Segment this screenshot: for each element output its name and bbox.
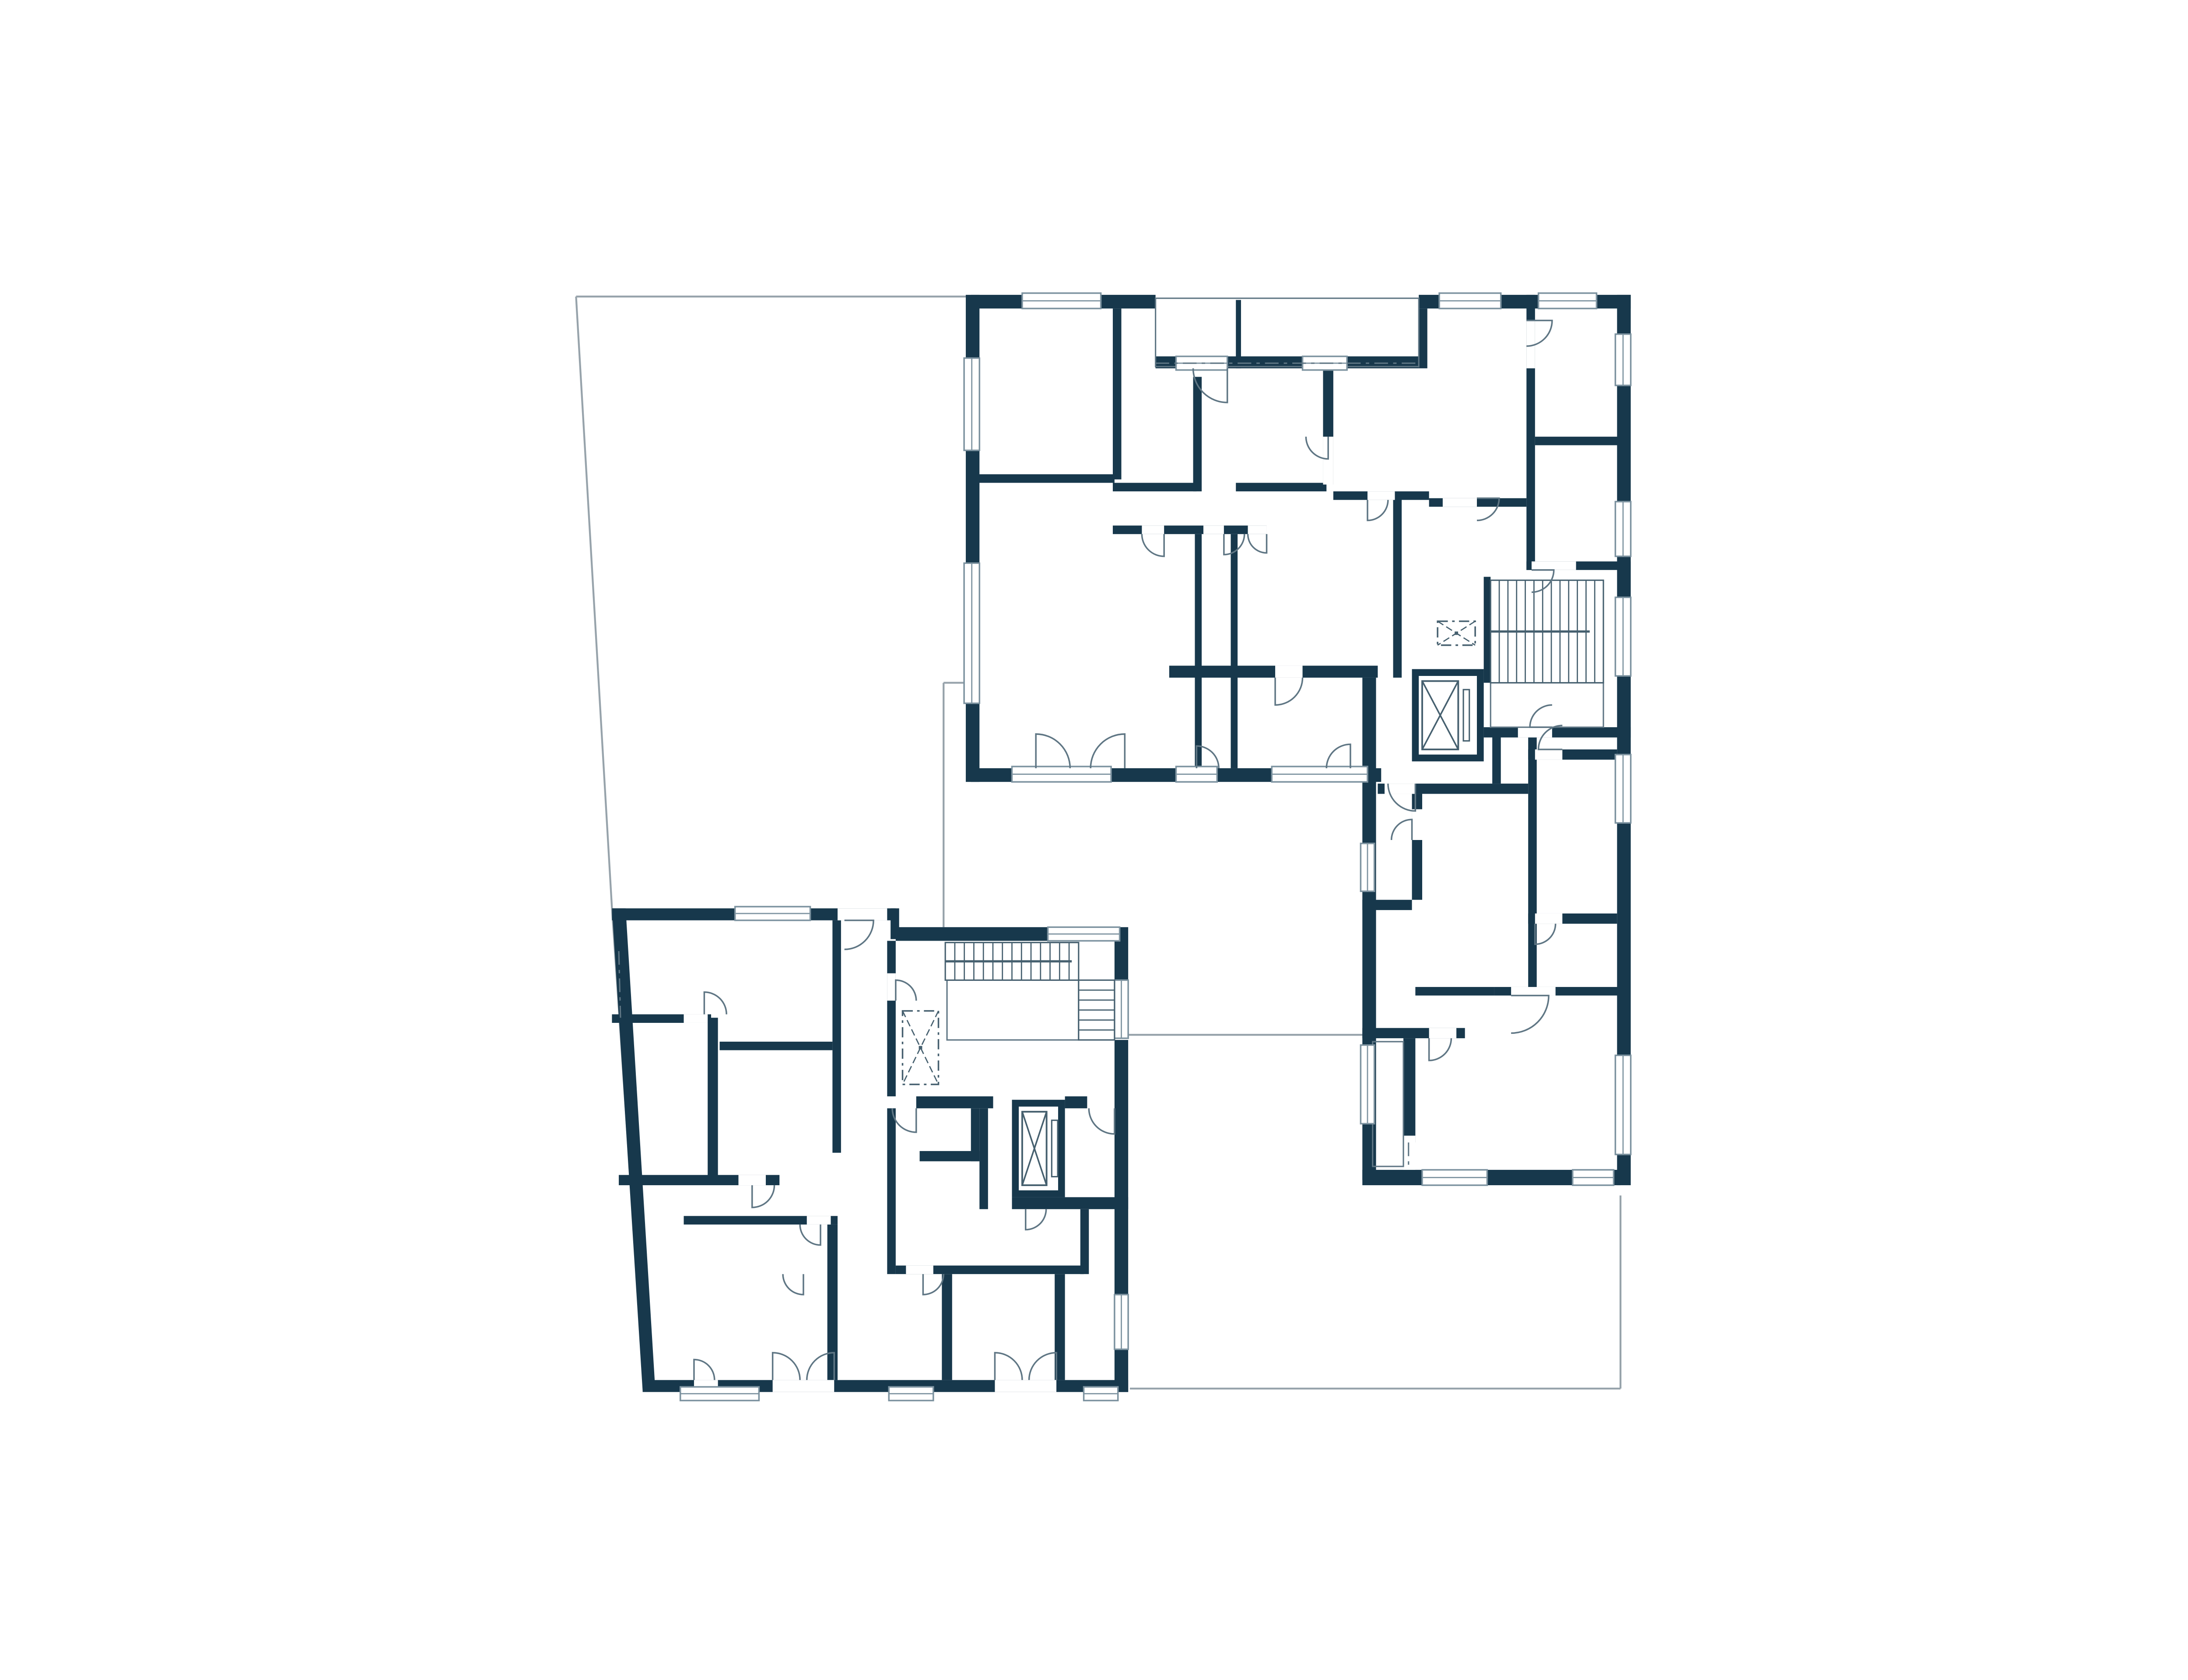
wall bbox=[1065, 1096, 1087, 1108]
wall bbox=[887, 941, 896, 1096]
wall bbox=[828, 1225, 838, 1380]
vent-shaft-center bbox=[919, 1046, 922, 1050]
door-opening bbox=[1275, 666, 1303, 678]
door-opening bbox=[1535, 749, 1563, 759]
door-opening bbox=[1142, 525, 1164, 534]
floor-plan-page bbox=[0, 0, 2188, 1680]
door-opening bbox=[838, 908, 887, 920]
wall bbox=[708, 1018, 718, 1178]
door-opening bbox=[1429, 1028, 1457, 1038]
wall bbox=[1113, 483, 1196, 492]
wall bbox=[971, 474, 1115, 483]
door-swing bbox=[1248, 534, 1267, 553]
wall bbox=[1169, 666, 1378, 678]
wall bbox=[1484, 727, 1631, 737]
door-opening bbox=[1532, 561, 1576, 570]
wall bbox=[887, 1108, 896, 1274]
wall bbox=[920, 1151, 980, 1161]
door-swing bbox=[1026, 1209, 1046, 1230]
door-swing bbox=[1090, 734, 1125, 768]
wall bbox=[896, 927, 1050, 941]
door-opening bbox=[1203, 525, 1224, 534]
door-opening bbox=[1412, 809, 1422, 840]
door-swing bbox=[1511, 995, 1549, 1033]
door-opening bbox=[773, 1380, 835, 1392]
site-boundary bbox=[576, 297, 1620, 1389]
wall bbox=[1193, 377, 1202, 491]
door-opening bbox=[1367, 491, 1395, 500]
staircases bbox=[945, 580, 1603, 1040]
wall bbox=[1617, 295, 1630, 1185]
wall bbox=[1393, 495, 1402, 678]
door-opening bbox=[684, 1014, 708, 1023]
wall bbox=[832, 920, 841, 1153]
wall bbox=[916, 1096, 993, 1108]
door-swing bbox=[752, 1185, 775, 1207]
terrace-outline bbox=[1373, 1042, 1403, 1166]
door-swing bbox=[892, 1108, 916, 1132]
floor-plan-drawing bbox=[0, 0, 2188, 1680]
wall bbox=[1535, 437, 1620, 445]
door-opening bbox=[739, 1175, 766, 1185]
door-swing bbox=[845, 920, 873, 949]
wall bbox=[1236, 300, 1241, 368]
door-opening bbox=[995, 1380, 1056, 1392]
door-opening bbox=[906, 1266, 933, 1274]
elevator-counterweight bbox=[1052, 1120, 1058, 1177]
wall bbox=[942, 1274, 952, 1380]
door-swing bbox=[800, 1225, 820, 1245]
door-opening bbox=[790, 1266, 817, 1274]
door-swing bbox=[1367, 500, 1388, 521]
wall bbox=[1113, 308, 1122, 479]
wall bbox=[1403, 1038, 1415, 1142]
door-swing bbox=[773, 1353, 800, 1380]
wall bbox=[1419, 308, 1427, 368]
wall-polygon bbox=[612, 908, 655, 1392]
door-opening bbox=[807, 1216, 831, 1225]
door-swing bbox=[995, 1353, 1022, 1380]
door-swing bbox=[1036, 734, 1070, 768]
wall bbox=[1012, 1197, 1129, 1209]
wall bbox=[1415, 987, 1494, 996]
wall bbox=[1195, 534, 1202, 768]
door-opening bbox=[1403, 1136, 1415, 1170]
door-swing bbox=[1535, 924, 1556, 944]
stair-landing bbox=[947, 980, 1079, 1040]
door-openings bbox=[684, 321, 1576, 1392]
door-swing bbox=[1326, 744, 1350, 768]
door-swing bbox=[923, 1274, 943, 1295]
wall bbox=[979, 1108, 988, 1209]
door-opening bbox=[1518, 727, 1552, 737]
door-opening bbox=[887, 973, 896, 1001]
wall bbox=[1484, 577, 1491, 682]
door-swing bbox=[1275, 678, 1303, 705]
wall bbox=[1080, 1209, 1089, 1274]
door-swing bbox=[1429, 1038, 1452, 1060]
wall bbox=[1231, 534, 1238, 768]
wall bbox=[720, 1042, 833, 1050]
door-swing bbox=[1029, 1353, 1057, 1380]
door-swing bbox=[704, 992, 726, 1015]
wall bbox=[1113, 525, 1267, 534]
door-opening bbox=[1535, 913, 1563, 924]
windows bbox=[680, 293, 1631, 1400]
door-swing bbox=[896, 980, 916, 1001]
door-opening bbox=[1511, 987, 1556, 996]
door-opening bbox=[1443, 498, 1477, 507]
door-swing bbox=[1392, 819, 1412, 840]
door-swing bbox=[783, 1274, 803, 1295]
door-swing bbox=[694, 1360, 715, 1380]
wall bbox=[1236, 483, 1326, 492]
site-line bbox=[576, 297, 612, 908]
door-swing bbox=[1142, 534, 1164, 556]
wall bbox=[1362, 900, 1412, 910]
vent-shaft-center bbox=[1455, 631, 1458, 635]
door-opening bbox=[1248, 525, 1267, 534]
door-swing bbox=[1089, 1108, 1115, 1134]
building-walls bbox=[612, 295, 1630, 1392]
elevator-counterweight bbox=[1463, 689, 1469, 741]
